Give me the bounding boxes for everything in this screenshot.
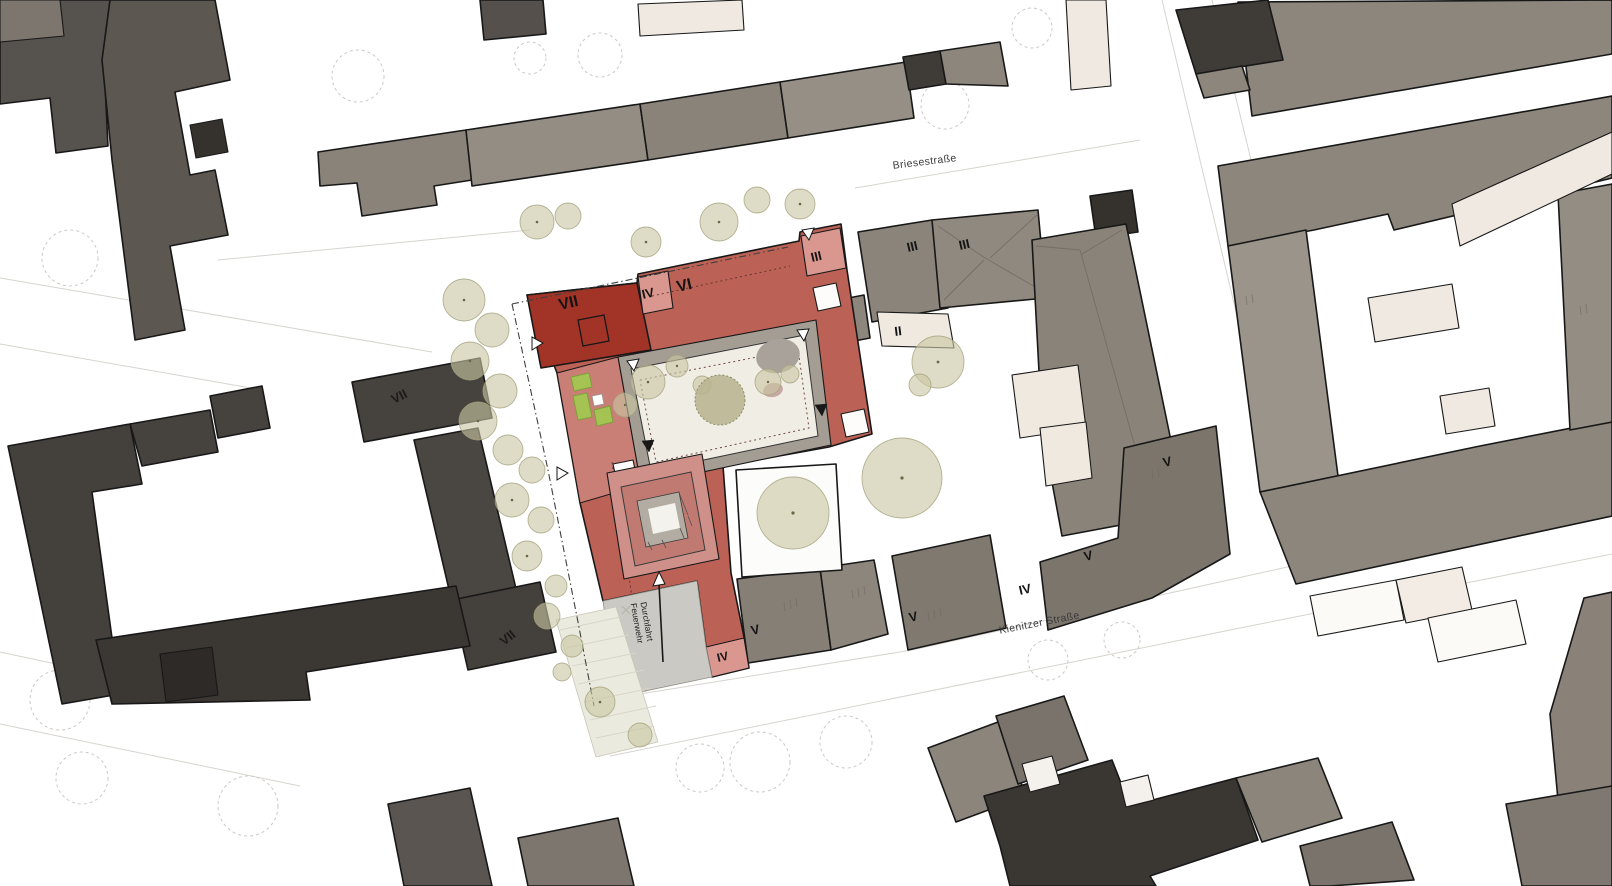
entrance-marker-icon: [557, 467, 568, 480]
floor-label: IV: [1017, 580, 1033, 597]
context-buildings-east: [1176, 0, 1612, 886]
context-buildings-north: [318, 0, 1111, 216]
site-plan: Durchfahrt Feuerwehr Briesestraße Kienit…: [0, 0, 1612, 886]
roof-shaft-square: [813, 283, 841, 311]
site-plan-canvas: Durchfahrt Feuerwehr Briesestraße Kienit…: [0, 0, 1612, 886]
atrium: [607, 454, 719, 579]
street-label-briesestrasse: Briesestraße: [892, 152, 957, 172]
roof-shaft-square: [841, 409, 869, 437]
street-label-kienitzer-strasse: Kienitzer Straße: [998, 609, 1080, 636]
context-buildings-southwest: [388, 788, 634, 886]
context-buildings-south: [928, 696, 1414, 886]
